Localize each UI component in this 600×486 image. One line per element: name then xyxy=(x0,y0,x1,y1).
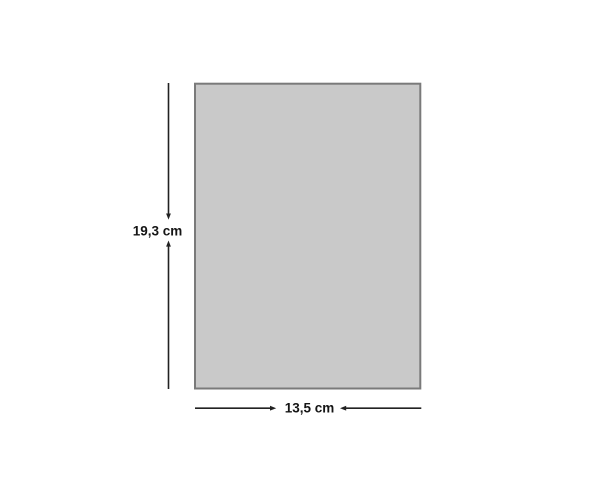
svg-text:13,5 cm: 13,5 cm xyxy=(285,401,335,416)
svg-text:19,3 cm: 19,3 cm xyxy=(133,223,183,238)
